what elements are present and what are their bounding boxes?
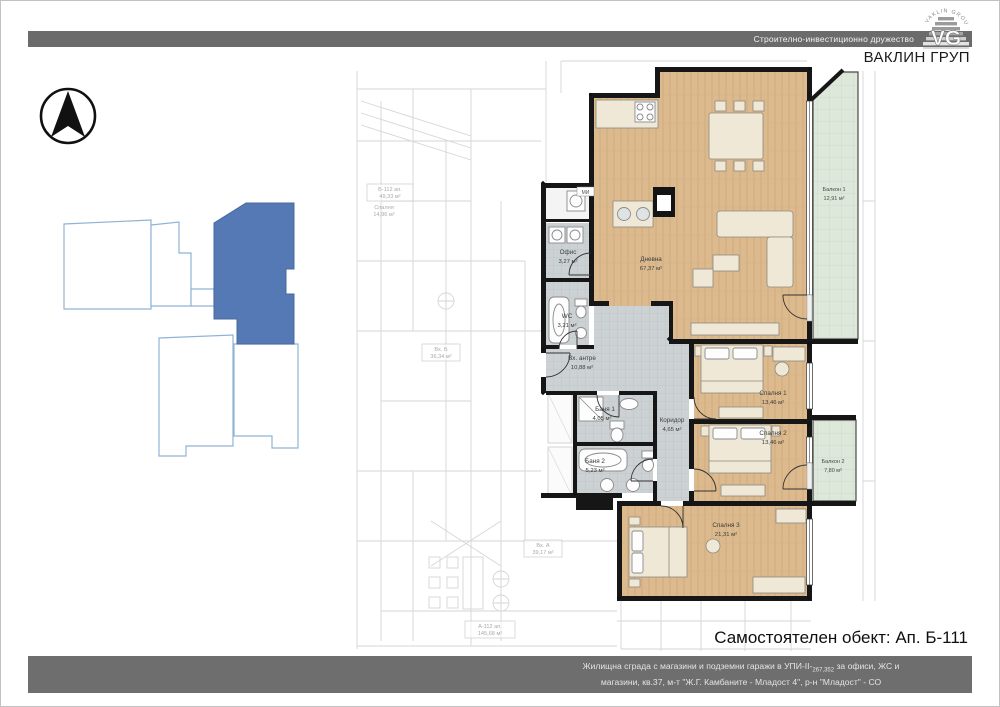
appliance-tag: МИ — [582, 190, 590, 196]
project-description: Жилищна сграда с магазини и подземни гар… — [516, 660, 966, 689]
svg-text:36,34 м²: 36,34 м² — [430, 354, 451, 360]
svg-text:7,80 м²: 7,80 м² — [824, 468, 842, 474]
floor-plan: Дневна 67,37 м² Спалня 1 13,46 м² Спалня… — [331, 46, 891, 661]
room-label-bedroom2: Спалня 2 — [759, 430, 787, 437]
vaklin-group-logo-icon: VAKLIN GROUP VG — [919, 3, 973, 50]
footer-bar: Жилищна сграда с магазини и подземни гар… — [28, 656, 972, 693]
svg-text:3,27 м²: 3,27 м² — [558, 259, 577, 265]
balcony1-floor — [813, 72, 858, 339]
room-label-bath1: Баня 1 — [595, 406, 615, 413]
svg-text:4,65 м²: 4,65 м² — [662, 427, 681, 433]
svg-text:5,23 м²: 5,23 м² — [585, 468, 604, 474]
svg-text:39,17 м²: 39,17 м² — [532, 550, 553, 556]
svg-text:3,21 м²: 3,21 м² — [557, 323, 576, 329]
svg-text:Вх. А: Вх. А — [536, 543, 550, 549]
svg-text:Б-112 ап.: Б-112 ап. — [378, 187, 402, 193]
svg-text:А-112 ап.: А-112 ап. — [478, 624, 502, 630]
svg-text:49,33 м²: 49,33 м² — [379, 194, 400, 200]
svg-text:VG: VG — [931, 27, 961, 50]
room-label-balcony1: Балкон 1 — [822, 187, 845, 193]
background-shafts — [548, 393, 572, 496]
background-labels: Б-112 ап. 49,33 м² Спалня 14,96 м² Вх. Б… — [367, 184, 562, 638]
key-plan-highlighted-unit — [214, 203, 294, 344]
object-title: Самостоятелен обект: Ап. Б-111 — [714, 628, 968, 648]
room-label-bedroom3: Спалня 3 — [712, 522, 740, 529]
room-label-pantry: Офис — [560, 249, 577, 256]
header-bar: Строително-инвестиционно дружество — [28, 31, 972, 47]
svg-text:12,91 м²: 12,91 м² — [824, 196, 845, 202]
svg-text:4,05 м²: 4,05 м² — [592, 416, 611, 422]
svg-text:13,46 м²: 13,46 м² — [762, 400, 784, 406]
svg-text:21,31 м²: 21,31 м² — [715, 532, 737, 538]
company-tagline: Строително-инвестиционно дружество — [754, 31, 914, 47]
key-plan — [56, 194, 306, 460]
svg-text:145,68 м²: 145,68 м² — [478, 631, 503, 637]
sheet: Строително-инвестиционно дружество VAKLI… — [0, 0, 1000, 707]
svg-text:13,46 м²: 13,46 м² — [762, 440, 784, 446]
room-label-bath2: Баня 2 — [585, 458, 605, 465]
room-label-wc: WC — [562, 313, 573, 320]
room-label-hall: Вх. антре — [568, 355, 596, 362]
room-label-living: Дневна — [640, 256, 662, 263]
svg-text:67,37 м²: 67,37 м² — [640, 266, 662, 272]
svg-text:Спалня: Спалня — [374, 205, 394, 211]
svg-text:Вх. Б: Вх. Б — [434, 347, 448, 353]
room-label-corridor: Коридор — [660, 417, 685, 424]
room-label-bedroom1: Спалня 1 — [759, 390, 787, 397]
tv-unit — [691, 323, 779, 335]
svg-text:14,96 м²: 14,96 м² — [373, 212, 394, 218]
north-arrow-icon — [37, 85, 99, 147]
room-label-balcony2: Балкон 2 — [821, 459, 844, 465]
svg-text:10,88 м²: 10,88 м² — [571, 365, 593, 371]
